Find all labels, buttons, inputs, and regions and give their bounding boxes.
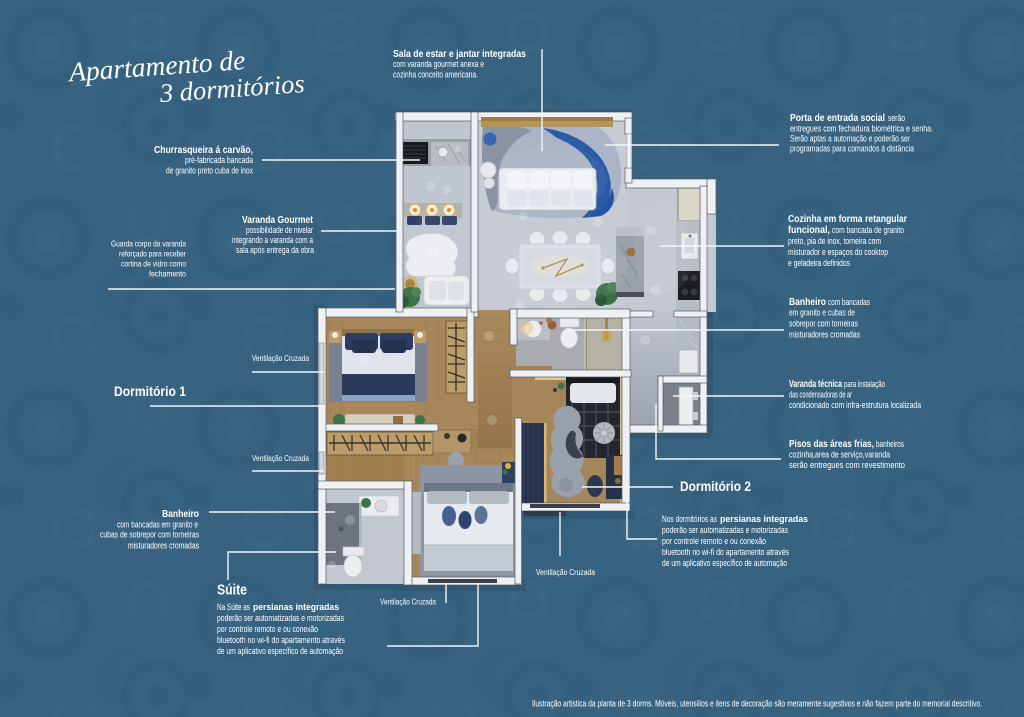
svg-text:serão: serão bbox=[888, 113, 905, 123]
svg-text:condicionado com infra-estrutu: condicionado com infra-estrutura localiz… bbox=[789, 400, 921, 410]
svg-text:com bancadas: com bancadas bbox=[828, 297, 870, 307]
svg-text:e geladeira definidos: e geladeira definidos bbox=[788, 258, 850, 268]
svg-text:bluetooth no wi-fi do apartame: bluetooth no wi-fi do apartamento atravé… bbox=[662, 547, 789, 557]
svg-text:em granito e cubas de: em granito e cubas de bbox=[789, 308, 855, 318]
svg-text:banheiros: banheiros bbox=[876, 439, 904, 449]
svg-text:com bancada de granito: com bancada de granito bbox=[832, 225, 904, 235]
svg-text:Dormitório 1: Dormitório 1 bbox=[114, 384, 186, 399]
svg-text:sala após entrega da obra: sala após entrega da obra bbox=[236, 245, 314, 255]
svg-text:cozinha,area de serviço,varand: cozinha,area de serviço,varanda bbox=[789, 450, 890, 460]
svg-text:persianas integradas: persianas integradas bbox=[253, 602, 339, 613]
svg-text:Ventilação Cruzada: Ventilação Cruzada bbox=[536, 567, 595, 577]
svg-text:bluetooth no wi-fi do apartame: bluetooth no wi-fi do apartamento atravé… bbox=[217, 635, 345, 645]
svg-text:Banheiro: Banheiro bbox=[789, 297, 826, 308]
svg-text:sobrepor com torneiras: sobrepor com torneiras bbox=[789, 319, 858, 329]
svg-text:Varanda técnica: Varanda técnica bbox=[789, 379, 842, 390]
svg-text:entregues com fechadura biomét: entregues com fechadura biométrica e sen… bbox=[790, 124, 933, 134]
svg-text:cozinha conceito americana.: cozinha conceito americana. bbox=[393, 70, 478, 80]
svg-text:por controle remoto e ou conex: por controle remoto e ou conexão bbox=[217, 624, 318, 634]
svg-text:reforçado para receber: reforçado para receber bbox=[119, 249, 186, 259]
svg-text:com varanda gourmet anexa e: com varanda gourmet anexa e bbox=[393, 59, 484, 69]
svg-text:de granito preto cuba de inox: de granito preto cuba de inox bbox=[166, 166, 253, 176]
svg-text:Nos dormitórios as: Nos dormitórios as bbox=[662, 514, 717, 524]
svg-text:das condensadoras de ar: das condensadoras de ar bbox=[789, 390, 852, 400]
svg-text:poderão ser automatizadas e mo: poderão ser automatizadas e motorizadas bbox=[662, 525, 788, 535]
svg-text:funcional,: funcional, bbox=[788, 225, 830, 236]
svg-text:misturador e espaços do cookto: misturador e espaços do cooktop bbox=[788, 247, 888, 257]
svg-text:de um aplicativo específico de: de um aplicativo específico de automação bbox=[662, 558, 787, 568]
svg-text:Serão aptas a automação e pod: Serão aptas a automação e poderão ser bbox=[790, 134, 910, 144]
svg-text:fechamento: fechamento bbox=[149, 269, 186, 279]
svg-text:Ventilação Cruzada: Ventilação Cruzada bbox=[252, 453, 309, 463]
svg-text:serão entregues com revestimen: serão entregues com revestimento bbox=[789, 460, 905, 470]
svg-text:Ventilação Cruzada: Ventilação Cruzada bbox=[252, 353, 309, 363]
svg-text:Porta de entrada social: Porta de entrada social bbox=[790, 113, 885, 124]
svg-text:poderão ser automatizadas e mo: poderão ser automatizadas e motorizadas bbox=[217, 613, 344, 623]
svg-text:de um aplicativo específico de: de um aplicativo específico de automação bbox=[217, 646, 343, 656]
svg-text:misturadores cromadas: misturadores cromadas bbox=[128, 541, 199, 551]
svg-text:Cozinha em forma retangular: Cozinha em forma retangular bbox=[788, 214, 907, 225]
svg-text:por controle remoto e ou conex: por controle remoto e ou conexão bbox=[662, 536, 766, 546]
svg-text:Ventilação Cruzada: Ventilação Cruzada bbox=[380, 597, 436, 607]
svg-text:possibilidade de nivelar: possibilidade de nivelar bbox=[246, 225, 313, 235]
svg-text:Ilustração artistica da planta: Ilustração artistica da planta de 3 dorm… bbox=[532, 699, 982, 709]
svg-text:Na Súite as: Na Súite as bbox=[217, 602, 250, 612]
svg-text:cortina de vidro como: cortina de vidro como bbox=[121, 259, 186, 269]
svg-text:integrando a varanda com a: integrando a varanda com a bbox=[232, 235, 313, 245]
svg-text:preto, pia de inox, torneira c: preto, pia de inox, torneira com bbox=[788, 236, 881, 246]
svg-text:persianas integradas: persianas integradas bbox=[720, 514, 808, 525]
svg-text:misturadores cromadas: misturadores cromadas bbox=[789, 330, 860, 340]
svg-text:com bancadas em granito e: com bancadas em granito e bbox=[117, 520, 198, 530]
svg-text:programadas para comandos á di: programadas para comandos á distância bbox=[790, 144, 914, 154]
svg-text:cubas de sobrepor com torneira: cubas de sobrepor com torneiras bbox=[100, 530, 199, 540]
svg-text:Dormitório 2: Dormitório 2 bbox=[680, 479, 751, 494]
svg-text:pré-fabricada bancada: pré-fabricada bancada bbox=[185, 155, 253, 165]
svg-text:Banheiro: Banheiro bbox=[162, 509, 199, 520]
svg-text:Pisos das áreas frias,: Pisos das áreas frias, bbox=[789, 439, 874, 450]
svg-text:para instalação: para instalação bbox=[844, 379, 885, 389]
svg-text:Súite: Súite bbox=[217, 582, 247, 599]
svg-text:Guarda corpo da varanda: Guarda corpo da varanda bbox=[111, 239, 186, 249]
